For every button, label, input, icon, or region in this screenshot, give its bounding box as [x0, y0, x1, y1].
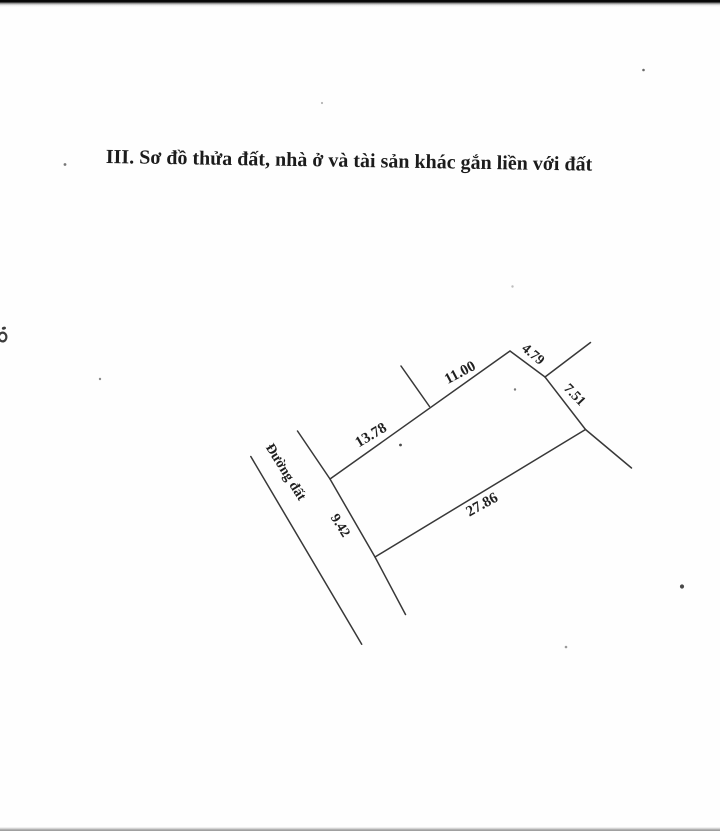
- svg-text:7.51: 7.51: [560, 381, 588, 409]
- svg-text:4.79: 4.79: [518, 341, 546, 368]
- svg-text:11.00: 11.00: [442, 358, 479, 388]
- svg-text:13.78: 13.78: [353, 420, 390, 451]
- svg-text:27.86: 27.86: [464, 490, 502, 521]
- svg-text:9.42: 9.42: [327, 511, 353, 540]
- svg-text:Đường đất: Đường đất: [262, 441, 309, 504]
